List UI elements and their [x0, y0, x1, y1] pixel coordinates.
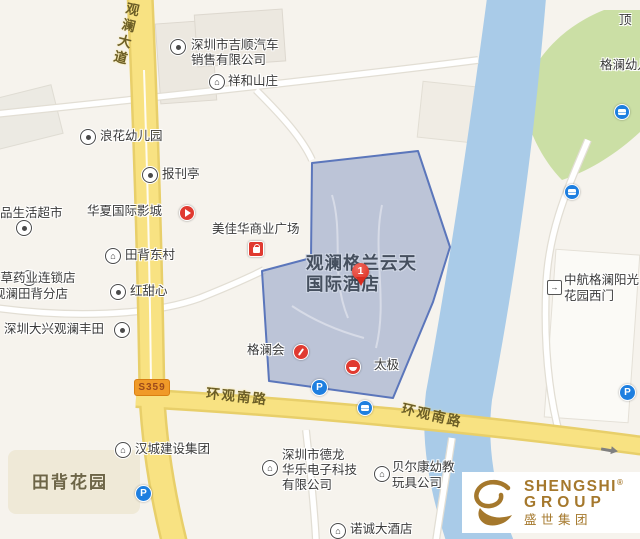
poi-label[interactable]: 有限公司: [282, 479, 332, 492]
logo-brand-cn: 盛世集团: [524, 514, 624, 527]
poi-label[interactable]: 浪花幼儿园: [100, 130, 163, 143]
poi-label[interactable]: 销售有限公司: [191, 54, 266, 67]
registered-mark: ®: [617, 478, 624, 487]
bus-stop-icon[interactable]: [564, 184, 580, 200]
marker-number: 1: [358, 266, 364, 277]
parking-icon[interactable]: P: [619, 384, 636, 401]
area-label-tianbei-garden: 田背花园: [32, 474, 108, 491]
poi-label[interactable]: 品生活超市: [0, 207, 63, 220]
s359-route-badge: S359: [134, 379, 170, 396]
parking-icon[interactable]: P: [311, 379, 328, 396]
poi-label[interactable]: 玩具公司: [392, 477, 442, 490]
dot-poi-icon[interactable]: [114, 322, 130, 338]
building-icon[interactable]: ⌂: [262, 460, 278, 476]
poi-label[interactable]: 红甜心: [130, 285, 168, 298]
poi-label[interactable]: 贝尔康幼教: [392, 461, 455, 474]
poi-label[interactable]: 汉城建设集团: [135, 443, 210, 456]
poi-label[interactable]: 太极: [374, 359, 399, 372]
poi-label[interactable]: 花园西门: [564, 290, 614, 303]
parking-icon[interactable]: P: [135, 485, 152, 502]
area-label-top-right: 顶: [619, 14, 632, 27]
poi-label[interactable]: 报刊亭: [162, 168, 200, 181]
poi-label[interactable]: 华夏国际影城: [87, 205, 162, 218]
cinema-icon[interactable]: [179, 205, 195, 221]
logo-brand-en-line2: GROUP: [524, 495, 624, 511]
bus-stop-icon[interactable]: [357, 400, 373, 416]
building-icon[interactable]: ⌂: [115, 442, 131, 458]
hotel-bed-icon[interactable]: ⌂: [330, 523, 346, 539]
map-viewport[interactable]: 观澜大道 环观南路 环观南路 S359 田背花园 顶 格澜幼儿园 观澜格兰云天 …: [0, 0, 640, 539]
ktv-icon[interactable]: [293, 344, 309, 360]
building-icon[interactable]: ⌂: [105, 248, 121, 264]
poi-label[interactable]: 诺诚大酒店: [350, 523, 413, 536]
poi-label[interactable]: 祥和山庄: [228, 75, 278, 88]
supermarket-icon[interactable]: [16, 220, 32, 236]
poi-label[interactable]: 中航格澜阳光: [564, 274, 639, 287]
poi-label[interactable]: 深圳市德龙: [282, 449, 345, 462]
shengshi-group-watermark: SHENGSHI® GROUP 盛世集团: [462, 472, 640, 533]
kindergarten-icon[interactable]: [80, 129, 96, 145]
dot-poi-icon[interactable]: [170, 39, 186, 55]
poi-label[interactable]: 田背东村: [125, 249, 175, 262]
poi-label[interactable]: 格澜会: [247, 344, 285, 357]
dot-poi-icon[interactable]: [142, 167, 158, 183]
dessert-icon[interactable]: [110, 284, 126, 300]
poi-label[interactable]: 本草药业连锁店: [0, 272, 76, 285]
poi-label[interactable]: 深圳市吉顺汽车: [191, 39, 279, 52]
shengshi-logo-icon: [468, 477, 520, 529]
shopping-mall-icon[interactable]: [248, 241, 264, 257]
hotel-name-line2: 国际酒店: [306, 276, 380, 294]
bus-stop-icon[interactable]: [614, 104, 630, 120]
logo-brand-en-line1: SHENGSHI®: [524, 479, 624, 495]
poi-label[interactable]: 观澜田背分店: [0, 288, 68, 301]
building-icon[interactable]: ⌂: [209, 74, 225, 90]
restaurant-icon[interactable]: [345, 359, 361, 375]
poi-label[interactable]: 深圳大兴观澜丰田: [4, 323, 104, 336]
poi-label[interactable]: 华乐电子科技: [282, 464, 357, 477]
area-label-gelan-kindergarten: 格澜幼儿园: [600, 59, 640, 72]
building-icon[interactable]: ⌂: [374, 466, 390, 482]
poi-label[interactable]: 美佳华商业广场: [212, 223, 300, 236]
gate-icon[interactable]: →: [547, 280, 562, 295]
result-marker-1[interactable]: 1: [352, 263, 369, 280]
